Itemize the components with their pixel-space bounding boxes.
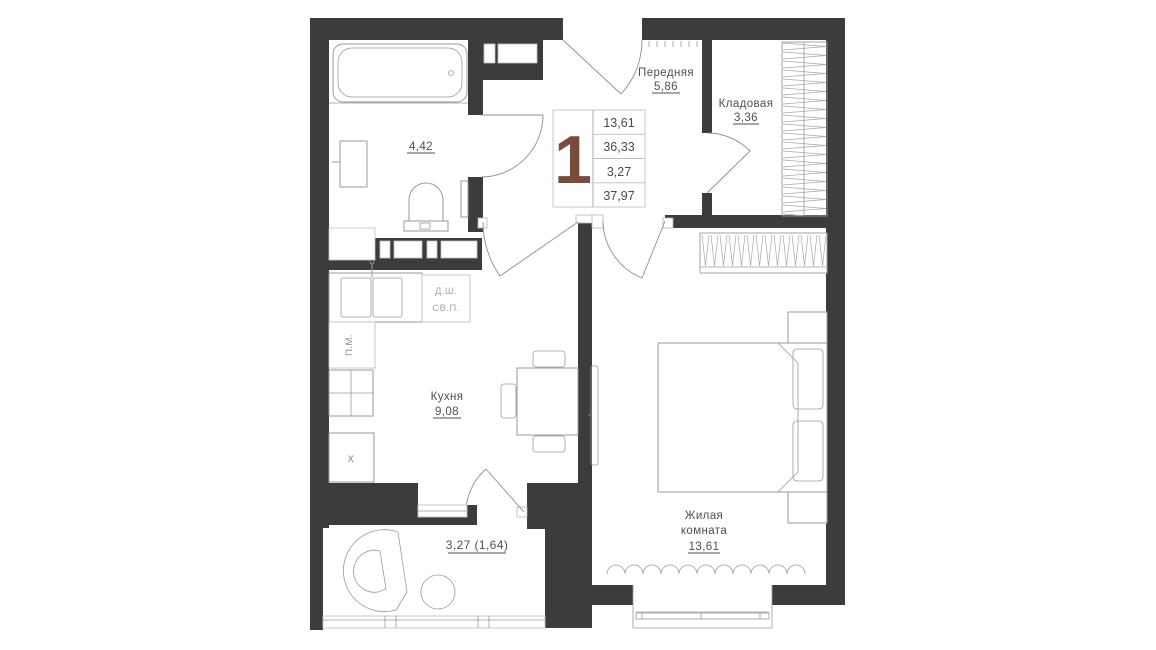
- wall-storage-left-upper: [702, 40, 712, 133]
- jamb: [478, 218, 487, 228]
- wall-balcony-living-divider: [545, 529, 592, 628]
- bathroom-fixtures: [329, 44, 468, 231]
- bathroom-cabinet: [461, 181, 468, 217]
- living-room-label: Жилая комната 13,61: [681, 510, 727, 553]
- vent-niche: [441, 241, 477, 258]
- storage-label: Кладовая 3,36: [719, 98, 774, 124]
- svg-text:3,27 (1,64): 3,27 (1,64): [446, 538, 508, 552]
- svg-text:5,86: 5,86: [654, 81, 678, 93]
- bathroom-niche-box: [329, 228, 375, 260]
- wall-bathroom-right-upper: [468, 40, 483, 115]
- wall-living-top: [665, 215, 845, 228]
- stat-total-area: 36,33: [603, 140, 634, 154]
- stove: [329, 370, 373, 416]
- wall-center: [578, 222, 592, 483]
- floor-plan-canvas: 1 13,61 36,33 3,27 37,97 Передняя 5,86 К…: [0, 0, 1156, 650]
- bathtub: [333, 44, 467, 102]
- wall-kitchen-bottom: [310, 483, 418, 525]
- kitchen-label: Кухня 9,08: [431, 391, 464, 418]
- balcony-fixtures: [343, 530, 455, 612]
- wall-left-balcony: [310, 528, 323, 630]
- bathroom-door: [481, 115, 543, 177]
- svg-text:13,61: 13,61: [689, 541, 720, 553]
- svg-text:Д.Ш.: Д.Ш.: [435, 286, 457, 297]
- wall-top-right: [642, 18, 845, 40]
- living-room-door: [603, 221, 665, 278]
- svg-text:Жилая: Жилая: [685, 510, 723, 522]
- kitchen-table: [517, 368, 578, 435]
- wall-shaft-band-left: [329, 260, 375, 270]
- svg-text:9,08: 9,08: [435, 406, 459, 418]
- svg-text:Кухня: Кухня: [431, 391, 464, 403]
- rooms-count: 1: [554, 122, 592, 198]
- balcony-glazing: [323, 616, 545, 628]
- jamb: [592, 215, 603, 228]
- svg-text:3,36: 3,36: [734, 112, 758, 124]
- svg-text:4,42: 4,42: [409, 141, 433, 153]
- wall-window-door-pier: [467, 505, 477, 525]
- door-jambs: [478, 215, 673, 517]
- entrance-door: [563, 40, 642, 94]
- svg-text:Передняя: Передняя: [638, 67, 694, 79]
- living-room-wardrobe: [700, 233, 827, 273]
- floor-plan: 1 13,61 36,33 3,27 37,97 Передняя 5,86 К…: [0, 0, 1156, 650]
- vent-niche: [484, 44, 495, 63]
- chair: [533, 351, 565, 367]
- vent-niche: [394, 241, 422, 258]
- vent-niche: [498, 44, 537, 63]
- svg-text:Кладовая: Кладовая: [719, 98, 774, 110]
- washbasin: [332, 141, 367, 187]
- kitchen-door: [483, 222, 578, 276]
- wall-top-left: [310, 18, 563, 40]
- kitchen-table-and-chairs: [501, 351, 578, 452]
- nightstand: [788, 312, 827, 344]
- svg-text:СВ.П.: СВ.П.: [432, 303, 459, 314]
- nightstand: [788, 491, 827, 523]
- washing-machine-label: П.М.: [344, 334, 355, 356]
- living-room-bay-window: [633, 585, 772, 628]
- bathroom-label: 4,42: [407, 141, 435, 153]
- hallway-label: Передняя 5,86: [638, 67, 694, 93]
- fridge-mark: х: [348, 451, 354, 465]
- unit-info-box: 1 13,61 36,33 3,27 37,97: [553, 110, 645, 207]
- storage-door: [707, 133, 750, 193]
- toilet: [404, 183, 448, 231]
- wall-sw-corner-living: [527, 483, 592, 529]
- armchair: [343, 530, 407, 612]
- entrance-doormat: [649, 41, 697, 47]
- curtain-wave: [607, 565, 805, 574]
- wall-below-window: [418, 517, 467, 525]
- stat-balcony-area: 3,27: [607, 165, 631, 179]
- duct-shaft-box: [422, 275, 470, 322]
- wall-left: [310, 18, 329, 528]
- wall-bay-right: [772, 585, 845, 605]
- wardrobes: [700, 42, 827, 273]
- stat-living-area: 13,61: [603, 116, 634, 130]
- jamb: [517, 507, 527, 517]
- svg-text:комната: комната: [681, 525, 727, 537]
- round-table: [421, 575, 455, 609]
- jamb: [576, 215, 594, 223]
- vent-niche: [380, 241, 390, 258]
- storage-wardrobe: [782, 42, 827, 216]
- chair: [501, 384, 516, 418]
- chair: [533, 436, 565, 452]
- stat-overall-area: 37,97: [603, 189, 634, 203]
- balcony-label: 3,27 (1,64): [446, 538, 508, 553]
- kitchen-window: [418, 505, 467, 517]
- vent-niche: [427, 241, 437, 258]
- bed: [658, 343, 827, 492]
- wall-right: [826, 18, 845, 605]
- wall-bay-left: [592, 585, 633, 605]
